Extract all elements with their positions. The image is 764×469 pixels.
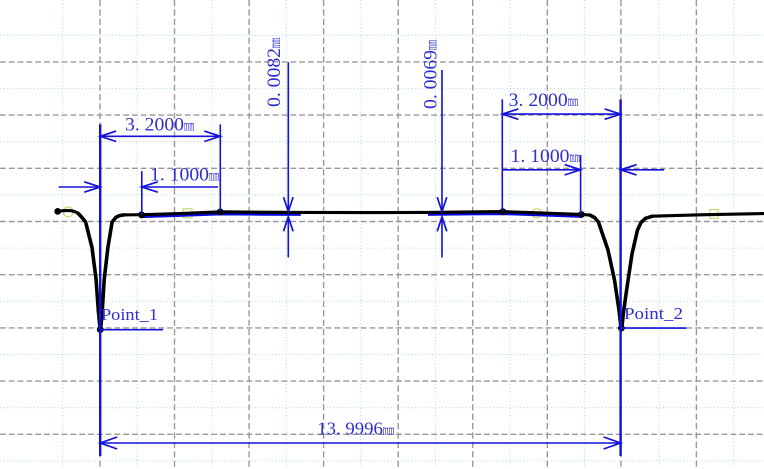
svg-text:mm: mm xyxy=(568,93,579,110)
svg-text:3. 2000: 3. 2000 xyxy=(509,90,568,111)
svg-text:mm: mm xyxy=(570,149,581,166)
svg-text:3. 2000: 3. 2000 xyxy=(125,115,184,136)
svg-text:0. 0082: 0. 0082 xyxy=(264,48,285,107)
svg-text:mm: mm xyxy=(267,37,284,48)
svg-text:0. 0069: 0. 0069 xyxy=(420,50,441,109)
svg-text:mm: mm xyxy=(209,167,220,184)
svg-text:1. 1000: 1. 1000 xyxy=(511,146,570,167)
svg-text:Point_1: Point_1 xyxy=(101,305,158,324)
svg-text:mm: mm xyxy=(383,423,395,439)
svg-text:1. 1000: 1. 1000 xyxy=(150,164,209,185)
svg-text:Point_2: Point_2 xyxy=(624,304,683,323)
svg-text:mm: mm xyxy=(423,39,440,50)
svg-text:mm: mm xyxy=(184,118,195,135)
svg-text:13. 9996: 13. 9996 xyxy=(317,419,383,439)
